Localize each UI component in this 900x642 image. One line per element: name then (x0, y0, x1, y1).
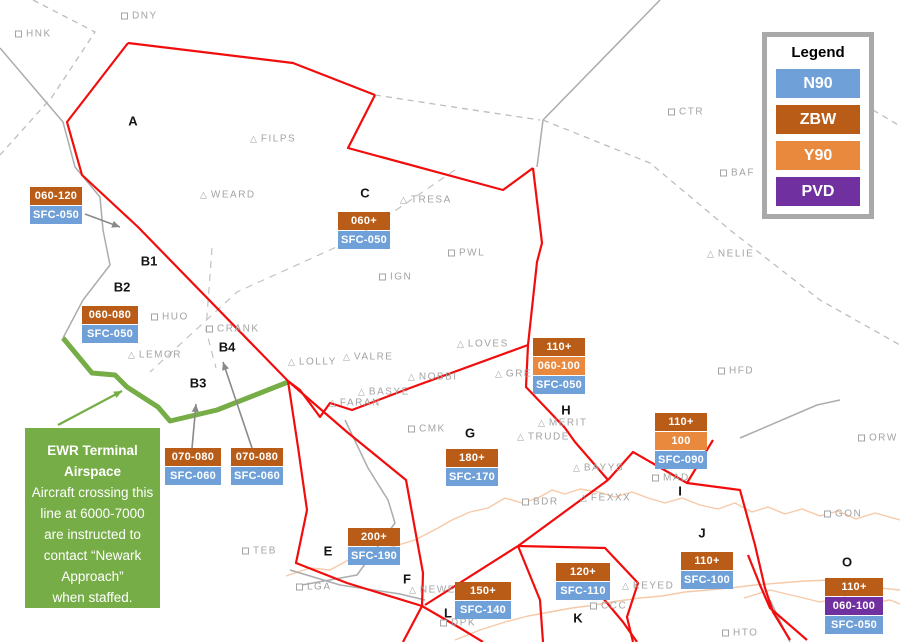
altitude-row-Y90: 100 (655, 432, 707, 450)
legend-entry-Y90: Y90 (776, 141, 860, 170)
navaid-square-icon (15, 31, 22, 38)
waypoint-label: HFD (729, 366, 754, 377)
altitude-row-N90: SFC-140 (455, 601, 511, 619)
waypoint-label: FARAN (340, 398, 381, 409)
pointer-arrow-head (222, 362, 229, 371)
altitude-label-box-5: 180+SFC-170 (446, 449, 498, 487)
navaid-square-icon (151, 314, 158, 321)
navaid-square-icon (448, 250, 455, 257)
waypoint-DNY: DNY (121, 11, 158, 22)
waypoint-LOLLY: △LOLLY (288, 357, 337, 368)
altitude-row-N90: SFC-110 (556, 582, 610, 600)
ewr-note-body-line: Aircraft crossing this (25, 482, 160, 503)
ewr-note-body-line: Approach” (25, 566, 160, 587)
sector-label-F: F (403, 572, 411, 587)
fix-triangle-icon: △ (580, 494, 587, 503)
waypoint-FILPS: △FILPS (250, 134, 296, 145)
navaid-square-icon (379, 274, 386, 281)
altitude-row-N90: SFC-060 (165, 467, 221, 485)
red-boundary-line (518, 480, 608, 546)
altitude-row-N90: SFC-050 (338, 231, 390, 249)
fix-triangle-icon: △ (128, 351, 135, 360)
altitude-label-box-0: 060-120SFC-050 (30, 187, 82, 225)
navaid-square-icon (408, 426, 415, 433)
waypoint-label: BDR (533, 497, 559, 508)
navaid-square-icon (668, 109, 675, 116)
ewr-note-title-line: Airspace (25, 461, 160, 482)
waypoint-HNK: HNK (15, 29, 52, 40)
altitude-row-Y90: 060-100 (533, 357, 585, 375)
navaid-square-icon (720, 170, 727, 177)
waypoint-label: TEB (253, 546, 277, 557)
altitude-label-box-12: 070-080SFC-060 (231, 448, 283, 486)
navaid-square-icon (440, 620, 447, 627)
fix-triangle-icon: △ (495, 370, 502, 379)
pointer-arrow (58, 391, 122, 425)
navaid-square-icon (722, 630, 729, 637)
waypoint-label: VALRE (354, 352, 394, 363)
waypoint-label: FEXXX (591, 493, 631, 504)
red-boundary-line (348, 95, 533, 190)
waypoint-CRANK: CRANK (206, 324, 260, 335)
legend-title: Legend (767, 44, 869, 61)
waypoint-label: LEMOR (139, 350, 182, 361)
altitude-label-box-9: 110+SFC-100 (681, 552, 733, 590)
airway-boundary-line (206, 248, 216, 368)
altitude-row-ZBW: 110+ (681, 552, 733, 570)
sector-label-C: C (360, 186, 369, 201)
waypoint-MAD: MAD (652, 473, 690, 484)
sector-label-B3: B3 (190, 376, 207, 391)
waypoint-label: DNY (132, 11, 158, 22)
waypoint-label: FILPS (261, 134, 296, 145)
fix-triangle-icon: △ (538, 419, 545, 428)
sector-label-B1: B1 (141, 254, 158, 269)
dashed-boundary-line (0, 0, 95, 155)
waypoint-label: TRESA (411, 195, 452, 206)
navaid-square-icon (522, 499, 529, 506)
altitude-row-N90: SFC-060 (231, 467, 283, 485)
altitude-row-ZBW: 070-080 (231, 448, 283, 466)
waypoint-GRE: △GRE (495, 369, 532, 380)
waypoint-label: PWL (459, 248, 485, 259)
altitude-row-ZBW: 180+ (446, 449, 498, 467)
waypoint-label: NELIE (718, 249, 754, 260)
waypoint-KEYED: △KEYED (622, 581, 674, 592)
altitude-row-N90: SFC-050 (825, 616, 883, 634)
ewr-note-body-line: contact “Newark (25, 545, 160, 566)
waypoint-ORW: ORW (858, 433, 898, 444)
fix-triangle-icon: △ (707, 250, 714, 259)
waypoint-label: HUO (162, 312, 189, 323)
waypoint-label: GRE (506, 369, 532, 380)
waypoint-label: BAYYS (584, 463, 624, 474)
red-boundary-line (403, 606, 422, 642)
altitude-label-box-11: 070-080SFC-060 (165, 448, 221, 486)
navaid-square-icon (718, 368, 725, 375)
waypoint-FEXXX: △FEXXX (580, 493, 631, 504)
waypoint-label: IGN (390, 272, 412, 283)
waypoint-IGN: IGN (379, 272, 412, 283)
fix-triangle-icon: △ (288, 358, 295, 367)
altitude-row-ZBW: 110+ (655, 413, 707, 431)
waypoint-label: BASYE (369, 387, 410, 398)
altitude-row-N90: SFC-050 (533, 376, 585, 394)
altitude-row-N90: SFC-050 (82, 325, 138, 343)
waypoint-FARAN: △FARAN (329, 398, 381, 409)
waypoint-label: NOBBI (419, 372, 458, 383)
fix-triangle-icon: △ (329, 399, 336, 408)
waypoint-CTR: CTR (668, 107, 704, 118)
red-boundary-line (288, 381, 422, 606)
navaid-square-icon (206, 326, 213, 333)
waypoint-label: TRUDE (528, 432, 570, 443)
fix-triangle-icon: △ (457, 340, 464, 349)
waypoint-label: CTR (679, 107, 704, 118)
altitude-label-box-10: 110+060-100SFC-050 (825, 578, 883, 635)
fix-triangle-icon: △ (622, 582, 629, 591)
waypoint-CCC: CCC (590, 601, 627, 612)
gray-boundary-line (740, 400, 840, 438)
waypoint-label: BAF (731, 168, 755, 179)
sector-label-I: I (678, 484, 682, 499)
legend-entry-PVD: PVD (776, 177, 860, 206)
waypoint-label: GON (835, 509, 862, 520)
altitude-row-N90: SFC-090 (655, 451, 707, 469)
fix-triangle-icon: △ (400, 196, 407, 205)
sector-label-L: L (444, 606, 452, 621)
waypoint-BASYE: △BASYE (358, 387, 410, 398)
fix-triangle-icon: △ (358, 388, 365, 397)
navaid-square-icon (590, 603, 597, 610)
red-boundary-line (128, 43, 375, 95)
airspace-map: Legend N90ZBWY90PVD EWR TerminalAirspace… (0, 0, 900, 642)
ewr-note-title-line: EWR Terminal (25, 440, 160, 461)
waypoint-label: CRANK (217, 324, 260, 335)
waypoint-label: LGA (307, 582, 332, 593)
waypoint-MERIT: △MERIT (538, 418, 588, 429)
waypoint-LEMOR: △LEMOR (128, 350, 182, 361)
ewr-note-body-line: line at 6000-7000 (25, 503, 160, 524)
waypoint-BAF: BAF (720, 168, 755, 179)
waypoint-WEARD: △WEARD (200, 190, 256, 201)
altitude-row-ZBW: 150+ (455, 582, 511, 600)
ewr-terminal-airspace-note: EWR TerminalAirspaceAircraft crossing th… (25, 428, 160, 608)
altitude-row-ZBW: 060-120 (30, 187, 82, 205)
navaid-square-icon (242, 548, 249, 555)
waypoint-HUO: HUO (151, 312, 189, 323)
sector-label-B4: B4 (219, 340, 236, 355)
altitude-label-box-8: 120+SFC-110 (556, 563, 610, 601)
dashed-boundary-line (873, 110, 900, 126)
waypoint-label: HTO (733, 628, 758, 639)
sector-label-B2: B2 (114, 280, 131, 295)
legend: Legend N90ZBWY90PVD (762, 32, 874, 219)
fix-triangle-icon: △ (573, 464, 580, 473)
navaid-square-icon (858, 435, 865, 442)
waypoint-PWL: PWL (448, 248, 485, 259)
waypoint-label: CCC (601, 601, 627, 612)
sector-label-J: J (698, 526, 705, 541)
waypoint-NOBBI: △NOBBI (408, 372, 458, 383)
ewr-note-body-line: when staffed. (25, 587, 160, 608)
waypoint-label: KEYED (633, 581, 674, 592)
waypoint-label: MERIT (549, 418, 588, 429)
sector-label-K: K (573, 611, 582, 626)
fix-triangle-icon: △ (408, 373, 415, 382)
fix-triangle-icon: △ (343, 353, 350, 362)
sector-label-A: A (128, 114, 137, 129)
altitude-row-ZBW: 060-080 (82, 306, 138, 324)
waypoint-label: LOVES (468, 339, 509, 350)
legend-entry-N90: N90 (776, 69, 860, 98)
altitude-row-N90: SFC-050 (30, 206, 82, 224)
navaid-square-icon (824, 511, 831, 518)
sector-label-E: E (324, 544, 333, 559)
fix-triangle-icon: △ (200, 191, 207, 200)
legend-entry-ZBW: ZBW (776, 105, 860, 134)
waypoint-CMK: CMK (408, 424, 446, 435)
altitude-row-ZBW: 200+ (348, 528, 400, 546)
altitude-label-box-3: 110+060-100SFC-050 (533, 338, 585, 395)
altitude-label-box-2: 060+SFC-050 (338, 212, 390, 250)
waypoint-LOVES: △LOVES (457, 339, 509, 350)
waypoint-VALRE: △VALRE (343, 352, 393, 363)
altitude-row-ZBW: 120+ (556, 563, 610, 581)
fix-triangle-icon: △ (409, 586, 416, 595)
altitude-row-ZBW: 110+ (533, 338, 585, 356)
sector-label-G: G (465, 426, 475, 441)
waypoint-LGA: LGA (296, 582, 332, 593)
altitude-label-box-7: 150+SFC-140 (455, 582, 511, 620)
waypoint-TRUDE: △TRUDE (517, 432, 570, 443)
pointer-arrow-head (111, 221, 120, 228)
waypoint-HTO: HTO (722, 628, 758, 639)
waypoint-label: ORW (869, 433, 898, 444)
altitude-row-N90: SFC-100 (681, 571, 733, 589)
waypoint-label: CMK (419, 424, 446, 435)
altitude-row-PVD: 060-100 (825, 597, 883, 615)
navaid-square-icon (296, 584, 303, 591)
ewr-note-body-line: are instructed to (25, 524, 160, 545)
altitude-row-N90: SFC-190 (348, 547, 400, 565)
altitude-row-ZBW: 070-080 (165, 448, 221, 466)
waypoint-TRESA: △TRESA (400, 195, 452, 206)
sector-label-O: O (842, 555, 852, 570)
legend-entries: N90ZBWY90PVD (767, 69, 869, 206)
altitude-row-N90: SFC-170 (446, 468, 498, 486)
altitude-label-box-1: 060-080SFC-050 (82, 306, 138, 344)
navaid-square-icon (652, 475, 659, 482)
sector-label-H: H (561, 403, 570, 418)
waypoint-label: WEARD (211, 190, 256, 201)
waypoint-BAYYS: △BAYYS (573, 463, 624, 474)
altitude-label-box-4: 110+100SFC-090 (655, 413, 707, 470)
altitude-row-ZBW: 060+ (338, 212, 390, 230)
waypoint-NELIE: △NELIE (707, 249, 754, 260)
altitude-row-ZBW: 110+ (825, 578, 883, 596)
red-boundary-line (518, 546, 543, 642)
waypoint-TEB: TEB (242, 546, 277, 557)
altitude-label-box-6: 200+SFC-190 (348, 528, 400, 566)
dashed-boundary-line (375, 95, 540, 120)
navaid-square-icon (121, 13, 128, 20)
waypoint-GON: GON (824, 509, 862, 520)
waypoint-BDR: BDR (522, 497, 559, 508)
waypoint-label: LOLLY (299, 357, 337, 368)
fix-triangle-icon: △ (250, 135, 257, 144)
fix-triangle-icon: △ (517, 433, 524, 442)
waypoint-label: HNK (26, 29, 52, 40)
waypoint-HFD: HFD (718, 366, 754, 377)
waypoint-label: MAD (663, 473, 690, 484)
